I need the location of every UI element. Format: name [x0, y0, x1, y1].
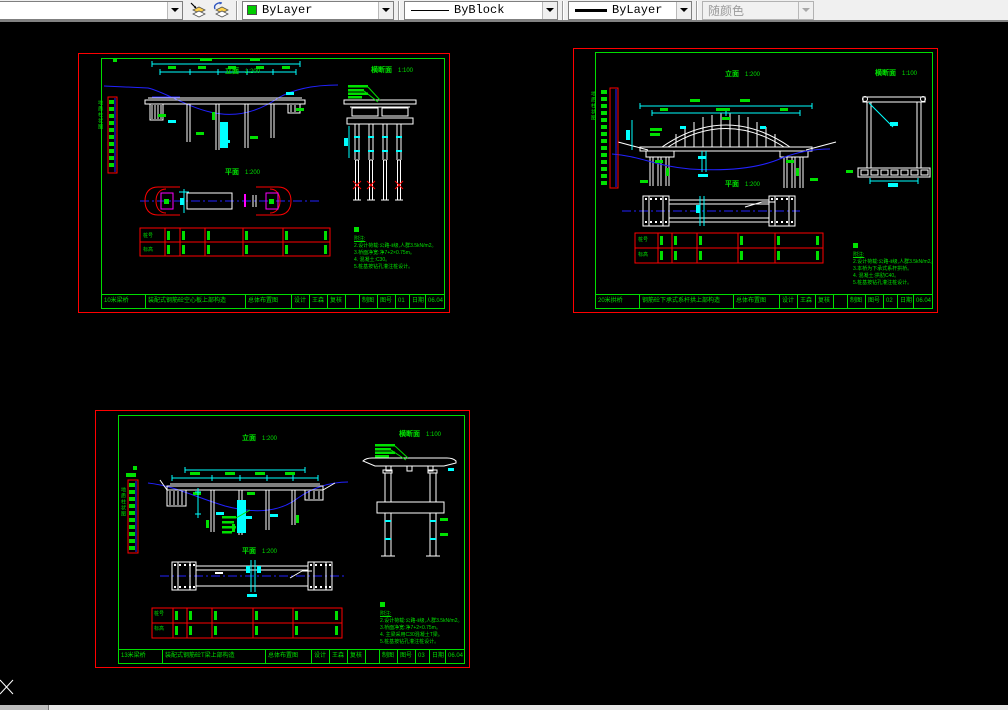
note-line: 2.设计荷载:公路-Ⅱ级,人群3.5kN/m2。 [380, 618, 462, 624]
table-row-label: 标高 [143, 247, 153, 253]
plotstyle-dropdown-value: 随颜色 [703, 2, 798, 19]
crosshair-cursor [0, 680, 13, 694]
titleblock-design-label: 设计 [312, 650, 330, 663]
notes-block: 附注: 2.设计荷载:公路-Ⅱ级,人群3.5kN/m2。 3.桥面净宽:净7+2… [380, 602, 468, 646]
note-line: 4. 混凝土:C30。 [354, 257, 390, 263]
linetype-dropdown-value: ByBlock [449, 3, 542, 17]
layer-dropdown[interactable] [0, 1, 183, 20]
plotstyle-dropdown: 随颜色 [702, 1, 814, 20]
titleblock-draft-label: 制图 [848, 295, 866, 308]
note-line: 3.桥面净宽:净7+2×0.75m。 [354, 250, 415, 256]
borehole-column-label: 地质柱状图 [590, 91, 595, 121]
plan-view-title: 平面1:200 [225, 169, 260, 177]
titleblock-designer: 王森 [798, 295, 816, 308]
titleblock-spacer [834, 295, 848, 308]
titleblock-drawing-name: 总体布置图 [246, 295, 292, 308]
borehole-column-label: 地质柱状图 [120, 487, 125, 517]
titleblock-date-label: 日期 [410, 295, 426, 308]
titleblock-spacer [366, 650, 380, 663]
elevation-view-title: 立面1:200 [725, 71, 760, 79]
section-view-title: 横断面1:100 [371, 67, 413, 75]
titleblock-sheetno: 03 [416, 650, 430, 663]
titleblock-sheetno-label: 图号 [866, 295, 884, 308]
scrollbar-corner [0, 705, 49, 710]
table-row-label: 标高 [638, 252, 648, 258]
sheet2-title-block: 20米拱桥 钢筋砼下承式系杆拱上部构造 总体布置图 设计 王森 复核 制图 图号… [596, 294, 932, 308]
titleblock-date-label: 日期 [430, 650, 446, 663]
color-dropdown-value: ByLayer [257, 3, 378, 17]
titleblock-check-label: 复核 [328, 295, 346, 308]
titleblock-date: 06.04 [426, 295, 444, 308]
titleblock-design-label: 设计 [780, 295, 798, 308]
notes-heading: 附注: [853, 252, 864, 258]
properties-toolbar: ByLayer ByBlock ByLayer 随颜色 [0, 0, 1008, 22]
notes-heading: 附注: [354, 236, 365, 242]
linetype-dropdown[interactable]: ByBlock [404, 1, 558, 20]
lineweight-dropdown[interactable]: ByLayer [568, 1, 692, 20]
titleblock-drawing-name: 总体布置图 [266, 650, 312, 663]
titleblock-project: 20米拱桥 [596, 295, 640, 308]
table-row-label: 标高 [154, 626, 164, 632]
chevron-down-icon [382, 8, 390, 12]
toolbar-separator [398, 1, 400, 20]
titleblock-date: 06.04 [914, 295, 932, 308]
notes-block: 附注: 2.设计荷载:公路-Ⅱ级,人群3.5kN/m2。 3.桥面净宽:净7+2… [354, 227, 442, 271]
note-line: 4. 混凝土:拱肋C40。 [853, 273, 899, 279]
linetype-sample-icon [411, 10, 449, 11]
titleblock-draft-label: 制图 [380, 650, 398, 663]
titleblock-sheetno-label: 图号 [398, 650, 416, 663]
note-line: 2.设计荷载:公路-Ⅱ级,人群3.5kN/m2。 [853, 259, 935, 265]
horizontal-scrollbar[interactable] [0, 705, 1008, 710]
titleblock-sheetno: 02 [884, 295, 898, 308]
note-line: 2.设计荷载:公路-Ⅱ级,人群3.5kN/m2。 [354, 243, 436, 249]
notes-heading: 附注: [380, 611, 391, 617]
titleblock-project: 10米梁桥 [102, 295, 146, 308]
plan-view-title: 平面1:200 [242, 548, 277, 556]
section-view-title: 横断面1:100 [875, 70, 917, 78]
section-view-title: 横断面1:100 [399, 431, 441, 439]
lineweight-dropdown-arrow[interactable] [676, 2, 691, 19]
titleblock-subject: 装配式钢筋砼空心板上部构造 [146, 295, 246, 308]
titleblock-check-label: 复核 [348, 650, 366, 663]
note-line: 4. 主梁采用C30混凝土T梁。 [380, 632, 443, 638]
toolbar-separator [696, 1, 698, 20]
color-dropdown-arrow[interactable] [378, 2, 393, 19]
lineweight-sample-icon [575, 9, 607, 12]
table-row-label: 桩号 [638, 237, 648, 243]
notes-block: 附注: 2.设计荷载:公路-Ⅱ级,人群3.5kN/m2。 3.本桥为下承式系杆拱… [853, 243, 941, 287]
chevron-down-icon [171, 8, 179, 12]
chevron-down-icon [680, 8, 688, 12]
toolbar-separator [236, 1, 238, 20]
chevron-down-icon [546, 8, 554, 12]
sheet3-title-block: 13米梁桥 装配式钢筋砼T梁上部构造 总体布置图 设计 王森 复核 制图 图号 … [119, 649, 464, 663]
titleblock-design-label: 设计 [292, 295, 310, 308]
elevation-view-title: 立面1:200 [225, 68, 260, 76]
titleblock-check-label: 复核 [816, 295, 834, 308]
sheet1-inner-frame: 10米梁桥 装配式钢筋砼空心板上部构造 总体布置图 设计 王森 复核 制图 图号… [101, 58, 445, 309]
titleblock-designer: 王森 [330, 650, 348, 663]
sheet1-title-block: 10米梁桥 装配式钢筋砼空心板上部构造 总体布置图 设计 王森 复核 制图 图号… [102, 294, 444, 308]
make-object-layer-current-button[interactable] [187, 0, 208, 20]
linetype-dropdown-arrow[interactable] [542, 2, 557, 19]
note-line: 3.桥面净宽:净7+2×0.75m。 [380, 625, 441, 631]
plotstyle-dropdown-arrow [798, 2, 813, 19]
titleblock-sheetno-label: 图号 [378, 295, 396, 308]
titleblock-date: 06.04 [446, 650, 464, 663]
chevron-down-icon [802, 8, 810, 12]
color-swatch [247, 5, 257, 15]
note-marker [853, 243, 858, 248]
titleblock-drawing-name: 总体布置图 [734, 295, 780, 308]
titleblock-spacer [346, 295, 360, 308]
note-line: 5.桩基按钻孔灌注桩设计。 [380, 639, 439, 645]
cad-application-window: ByLayer ByBlock ByLayer 随颜色 [0, 0, 1008, 710]
drawing-sheet-3: 13米梁桥 装配式钢筋砼T梁上部构造 总体布置图 设计 王森 复核 制图 图号 … [95, 410, 470, 668]
make-layer-current-icon [189, 1, 207, 19]
plan-view-title: 平面1:200 [725, 181, 760, 189]
elevation-view-title: 立面1:200 [242, 435, 277, 443]
note-marker [354, 227, 359, 232]
toolbar-separator [562, 1, 564, 20]
titleblock-designer: 王森 [310, 295, 328, 308]
note-line: 5.桩基按钻孔灌注桩设计。 [354, 264, 413, 270]
borehole-column-label: 地质柱状图 [97, 100, 102, 130]
color-dropdown[interactable]: ByLayer [242, 1, 394, 20]
titleblock-sheetno: 01 [396, 295, 410, 308]
titleblock-subject: 装配式钢筋砼T梁上部构造 [163, 650, 266, 663]
titleblock-subject: 钢筋砼下承式系杆拱上部构造 [640, 295, 734, 308]
layer-previous-icon [212, 1, 230, 19]
note-line: 3.本桥为下承式系杆拱桥。 [853, 266, 912, 272]
lineweight-dropdown-value: ByLayer [607, 3, 676, 17]
drawing-sheet-2: 20米拱桥 钢筋砼下承式系杆拱上部构造 总体布置图 设计 王森 复核 制图 图号… [573, 48, 938, 313]
layer-previous-button[interactable] [210, 0, 231, 20]
table-row-label: 桩号 [154, 611, 164, 617]
titleblock-draft-label: 制图 [360, 295, 378, 308]
note-line: 5.桩基按钻孔灌注桩设计。 [853, 280, 912, 286]
titleblock-project: 13米梁桥 [119, 650, 163, 663]
drawing-sheet-1: 10米梁桥 装配式钢筋砼空心板上部构造 总体布置图 设计 王森 复核 制图 图号… [78, 53, 450, 313]
layer-dropdown-arrow[interactable] [167, 2, 182, 19]
titleblock-date-label: 日期 [898, 295, 914, 308]
table-row-label: 桩号 [143, 233, 153, 239]
note-marker [380, 602, 385, 607]
